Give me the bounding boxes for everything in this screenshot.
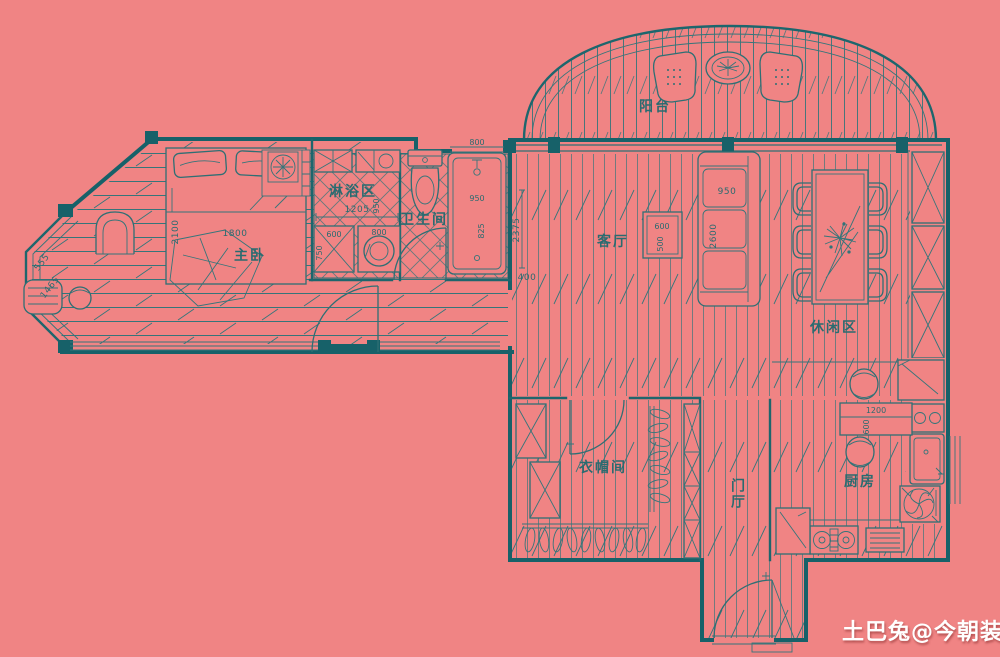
dim-side-table-d: 500 [656, 236, 665, 251]
dim-shower-width: 1205 [345, 205, 370, 215]
washing-machine: 800 [358, 226, 400, 272]
wall-cabinets [910, 150, 946, 360]
storage-cabinet-600x750: 600 750 [314, 226, 354, 272]
room-label-balcony: 阳台 [639, 98, 671, 115]
balcony-chair-left [654, 52, 696, 102]
balcony-chair-right [760, 52, 802, 102]
dim-cabinet-depth: 750 [315, 245, 324, 260]
kitchen-lower-cabinet [776, 508, 810, 554]
kitchen-chair-top [850, 369, 878, 399]
dim-shower-depth: 950 [372, 198, 381, 213]
dim-kitchen-table-w: 600 [862, 419, 871, 434]
bedroom-cabinet [262, 150, 310, 196]
dim-washer: 800 [371, 228, 386, 237]
floorplan-drawing: 阳台 800 1800 2100 [0, 0, 1000, 657]
cloak-cabinet-1 [516, 404, 546, 458]
shower-cabinet [314, 150, 352, 172]
sofa: 950 2600 [698, 152, 760, 306]
room-label-hall: 门厅 [729, 477, 745, 510]
sliding-track [331, 344, 367, 351]
balcony-table [706, 52, 750, 84]
cloak-cabinet-2 [530, 462, 560, 518]
round-stool [69, 287, 91, 309]
vent-grill [866, 528, 904, 552]
armchair [96, 212, 134, 254]
dim-living-wall: 2375 [512, 218, 522, 243]
dim-sofa-length: 2600 [709, 224, 719, 249]
washbasin [356, 150, 400, 172]
dim-sofa-width: 950 [718, 187, 737, 197]
dim-cabinet-width: 600 [326, 230, 341, 239]
stove [810, 526, 858, 554]
floorplan-canvas: 阳台 800 1800 2100 [0, 0, 1000, 657]
fridge [898, 360, 944, 400]
dim-bed-width: 1800 [223, 229, 248, 239]
room-label-cloakroom: 衣帽间 [579, 459, 627, 476]
room-label-leisure: 休闲区 [809, 319, 858, 336]
kitchen-table: 1200 600 [840, 403, 912, 435]
side-table: 600 500 [643, 212, 682, 258]
dim-tub-length: 825 [477, 223, 486, 238]
bathtub: 950 825 [448, 153, 506, 274]
room-label-living: 客厅 [596, 233, 629, 250]
divider-column [684, 404, 700, 558]
room-label-master-bedroom: 主卧 [234, 247, 266, 264]
dim-living-wall-b: 400 [518, 273, 537, 283]
dim-kitchen-table-l: 1200 [866, 406, 886, 415]
dim-bed-length: 2100 [171, 220, 181, 245]
room-label-shower: 淋浴区 [329, 183, 377, 200]
kitchen-chair-bottom [846, 437, 874, 467]
dim-tub-width: 950 [469, 194, 484, 203]
watermark: 土巴兔@今朝装饰 [842, 614, 1000, 646]
room-label-bathroom: 卫生间 [400, 211, 448, 228]
exhaust-fan [900, 486, 940, 522]
dining-table [812, 170, 868, 304]
room-label-kitchen: 厨房 [844, 473, 876, 490]
dim-bath-window: 800 [469, 138, 484, 147]
dim-side-table-w: 600 [654, 222, 669, 231]
